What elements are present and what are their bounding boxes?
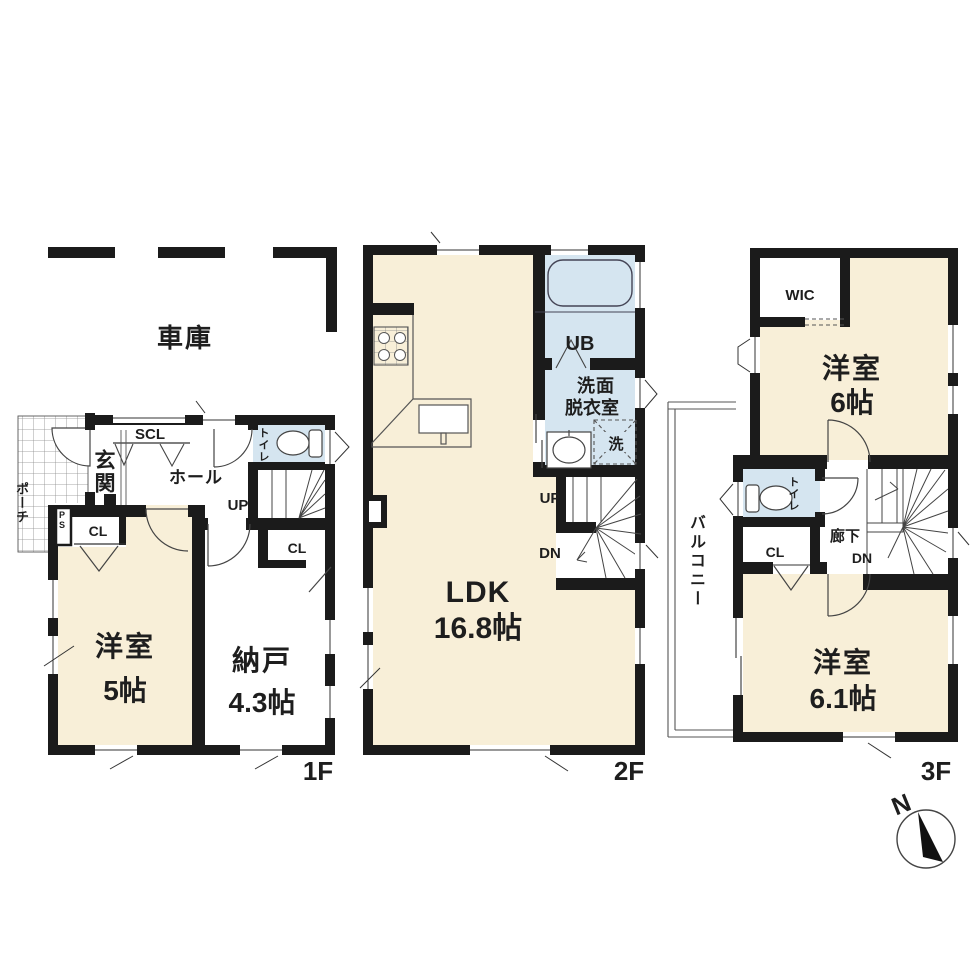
washroom-label-1: 洗面 [577, 375, 615, 396]
toilet-label-1f: トイレ [257, 427, 268, 463]
toilet-icon-1f [277, 430, 322, 457]
dn-label-3f: DN [852, 550, 872, 566]
bedroom5-label: 洋室 [95, 630, 155, 662]
stairs-3f [867, 469, 948, 574]
porch-label: ポーチ [15, 482, 28, 524]
stove-icon [374, 327, 408, 365]
toilet-icon-3f [746, 485, 792, 512]
wic-label: WIC [785, 287, 814, 304]
floor-1f: 車庫 [18, 247, 349, 786]
cl-wall [119, 517, 126, 545]
entrance-step-lines [121, 430, 126, 505]
cl-label-a: CL [89, 523, 108, 539]
dn-label-2f: DN [539, 545, 561, 562]
ub-label: UB [566, 333, 595, 355]
balcony-label: バルコニー [687, 514, 703, 609]
bedroom61-label: 洋室 [813, 646, 873, 678]
bedroom6-label: 洋室 [822, 352, 882, 384]
floor-3f: WIC 洋室 6帖 CL 廊下 DN 洋室 6.1帖 3F [668, 248, 969, 786]
corridor-label: 廊下 [830, 527, 860, 545]
toilet-label-3f: トイレ [787, 476, 798, 512]
floor-label-3f: 3F [921, 756, 951, 786]
compass: N [888, 789, 955, 868]
compass-needle [918, 812, 943, 862]
storage-size: 4.3帖 [229, 687, 296, 718]
compass-north-label: N [888, 789, 915, 822]
laundry-label: 洗 [608, 435, 623, 453]
garage-walls [48, 247, 337, 332]
pillar-nook-inner [369, 501, 381, 522]
entrance-label: 玄関 [93, 449, 114, 495]
vanity-sink-icon [547, 430, 591, 468]
cl-label-b: CL [288, 540, 307, 556]
bedroom61-size: 6.1帖 [810, 683, 877, 714]
garage-label: 車庫 [157, 323, 213, 353]
floor-label-2f: 2F [614, 756, 644, 786]
floor-label-1f: 1F [303, 756, 333, 786]
stairs-1f [272, 470, 325, 518]
ldk-size: 16.8帖 [434, 612, 522, 645]
pipe-space-label: PS [57, 510, 66, 530]
up-label-1f: UP [228, 497, 249, 514]
scl-fold-doors [115, 444, 184, 466]
washroom-label-2: 脱衣室 [565, 397, 619, 418]
scl-label: SCL [135, 426, 165, 443]
storage-label: 納戸 [232, 644, 292, 676]
bedroom6-size: 6帖 [830, 387, 874, 418]
floor-plan-canvas: 車庫 [0, 0, 980, 980]
cl3-label: CL [766, 544, 785, 560]
up-label-2f: UP [540, 490, 561, 507]
ldk-label: LDK [446, 576, 511, 609]
hall-label: ホール [169, 468, 223, 487]
washroom-sliding-door [533, 414, 545, 468]
floor-plan-drawing: 車庫 [0, 0, 980, 980]
floor-2f: LDK 16.8帖 UB 洗面 脱衣室 洗 UP DN 2F [360, 232, 658, 786]
bedroom5-size: 5帖 [103, 675, 147, 706]
